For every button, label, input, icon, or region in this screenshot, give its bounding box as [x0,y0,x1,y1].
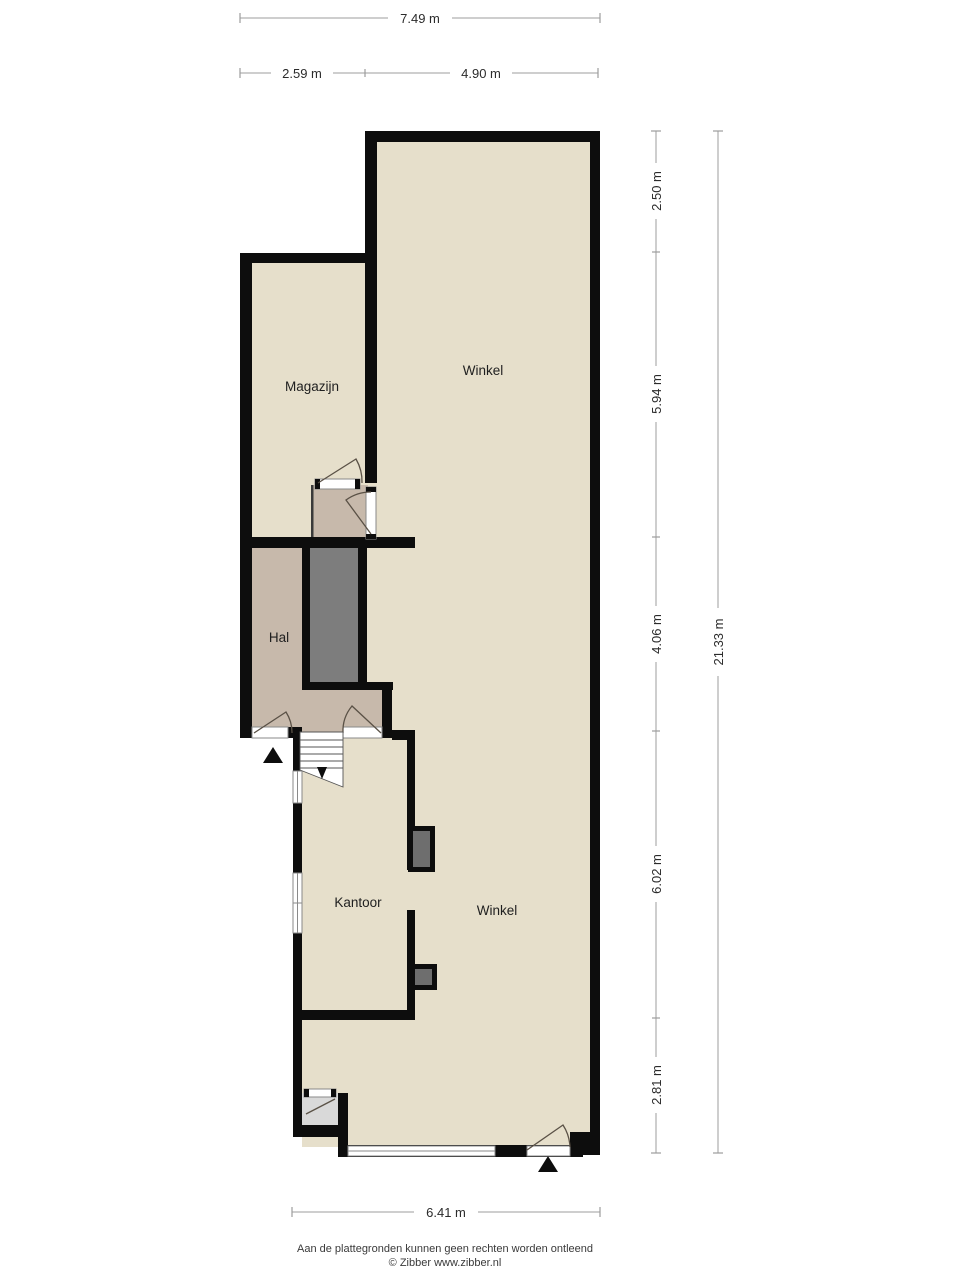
wall-segment [240,253,377,263]
wall-segment [240,537,415,548]
entrance-arrow-left [263,747,283,763]
pillar-fill [413,831,430,867]
entrance-arrow-bottom [538,1156,558,1172]
wall-segment [365,131,600,142]
wall-segment [293,1125,338,1137]
floorplan-page: Magazijn Winkel Hal Kantoor Winkel 7.49 … [0,0,960,1280]
door-hinge [304,1089,309,1097]
door-hinge [366,487,376,492]
wall-segment [302,1010,415,1020]
pillar-fill [415,969,432,985]
dim-label-top-left: 2.59 m [282,66,322,81]
wall-segment [302,548,310,690]
footer-credit: © Zibber www.zibber.nl [389,1257,502,1269]
dim-label-top-total: 7.49 m [400,11,440,26]
footer-disclaimer: Aan de plattegronden kunnen geen rechten… [297,1243,593,1255]
entry-room-fill [302,1093,338,1125]
wall-segment [590,131,600,1147]
stair-shaft-fill [310,548,358,682]
door-hinge [366,534,376,539]
door [527,1146,570,1156]
floorplan-canvas: Magazijn Winkel Hal Kantoor Winkel 7.49 … [0,0,960,1280]
dim-label-right-total: 21.33 m [711,619,726,666]
room-label-winkel-upper: Winkel [463,363,504,378]
dim-label-right-4: 6.02 m [649,854,664,894]
dim-label-right-2: 5.94 m [649,374,664,414]
dim-label-right-5: 2.81 m [649,1065,664,1105]
room-label-kantoor: Kantoor [334,895,382,910]
wall-segment [570,1132,600,1155]
dim-label-right-3: 4.06 m [649,614,664,654]
door [252,727,288,738]
wall-segment [365,131,377,483]
door [366,487,376,539]
door-hinge [331,1089,336,1097]
room-label-winkel-lower: Winkel [477,903,518,918]
wall-segment [240,253,252,738]
wall-segment [311,485,314,537]
wall-segment [358,548,367,690]
wall-segment [302,682,393,690]
room-label-hal: Hal [269,630,289,645]
door-hinge [315,479,320,489]
door-hinge [355,479,360,489]
wall-segment [293,933,302,1137]
wall-segment [407,910,415,1010]
wall-segment [293,803,302,873]
dim-label-top-right: 4.90 m [461,66,501,81]
dim-label-right-1: 2.50 m [649,171,664,211]
wall-segment [382,690,392,738]
footer: Aan de plattegronden kunnen geen rechten… [297,1243,593,1269]
room-label-magazijn: Magazijn [285,379,339,394]
dim-label-bottom: 6.41 m [426,1205,466,1220]
